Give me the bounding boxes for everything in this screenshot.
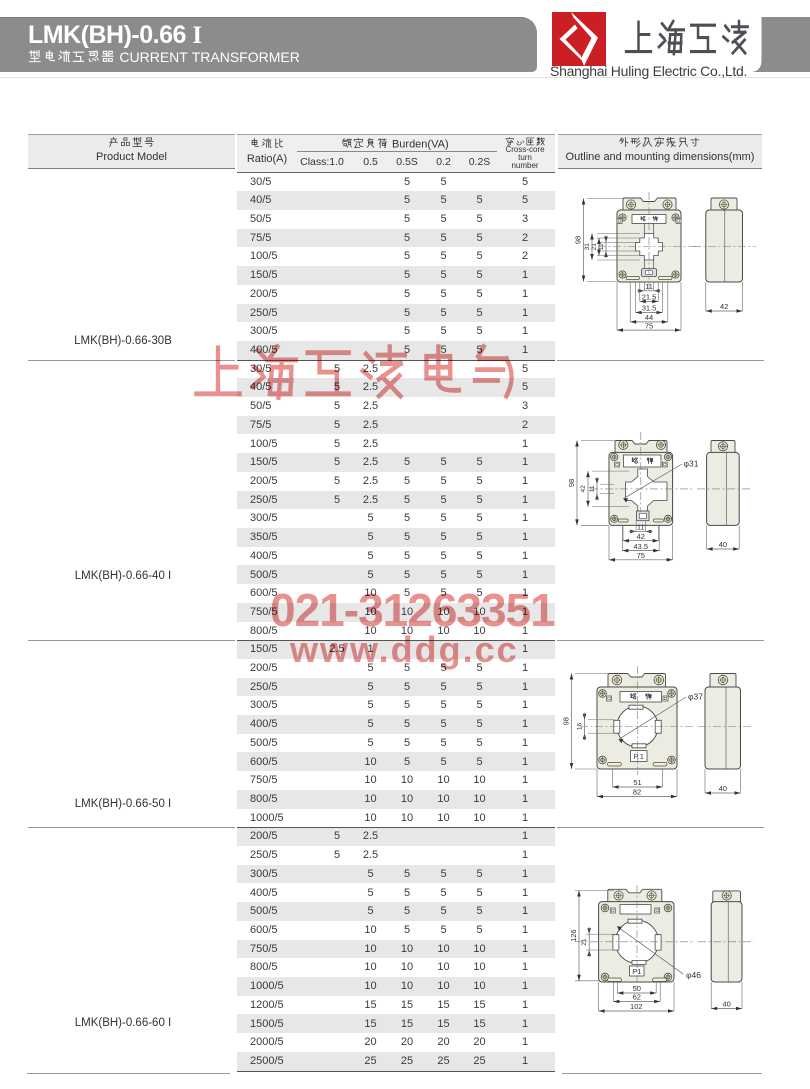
svg-text:31.5: 31.5 [642,304,657,313]
svg-text:43.5: 43.5 [633,542,648,551]
svg-text:40: 40 [719,784,727,793]
svg-text:21: 21 [591,243,598,251]
svg-text:42: 42 [580,485,587,493]
svg-text:98: 98 [567,479,576,487]
svg-text:42: 42 [637,532,645,541]
svg-text:φ46: φ46 [686,970,701,980]
svg-text:11: 11 [637,523,645,532]
svg-text:42: 42 [720,302,728,311]
svg-text:126: 126 [569,929,578,942]
svg-text:102: 102 [630,1002,643,1011]
svg-text:21.5: 21.5 [642,293,657,302]
svg-text:82: 82 [633,788,641,797]
svg-text:P.1: P.1 [634,752,644,761]
svg-text:40: 40 [719,540,727,549]
svg-text:98: 98 [574,236,583,244]
svg-text:φ37: φ37 [688,692,703,702]
svg-text:75: 75 [637,551,645,560]
svg-text:62: 62 [633,993,641,1002]
svg-text:98: 98 [562,717,571,725]
svg-text:φ31: φ31 [684,459,699,469]
svg-text:31: 31 [584,243,591,251]
svg-text:51: 51 [633,778,641,787]
svg-text:40: 40 [722,1000,730,1009]
svg-text:75: 75 [645,321,653,330]
